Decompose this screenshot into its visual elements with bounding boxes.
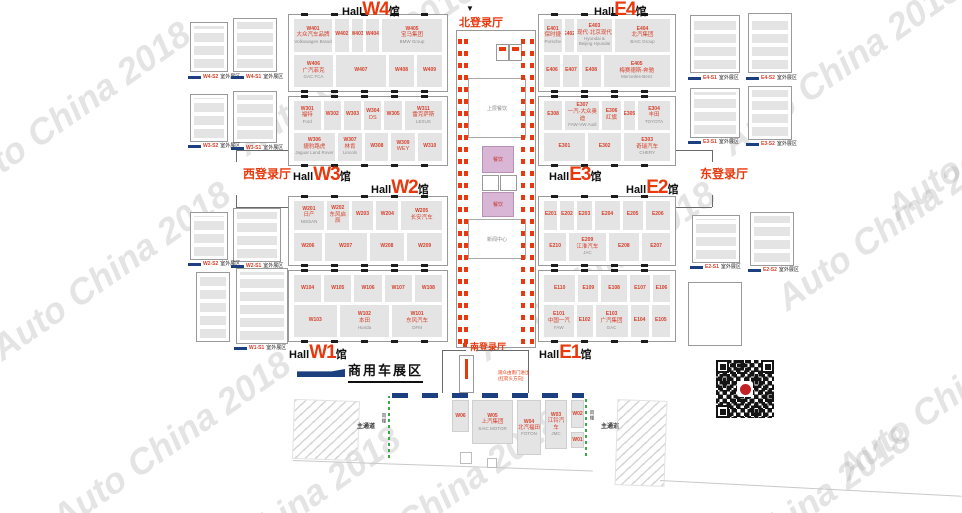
booth-id: W105: [331, 286, 344, 292]
hall-title-W1: HallW1馆: [289, 343, 347, 362]
booth-W102: W102本田Honda: [340, 305, 390, 337]
outdoor-zone-text: 室外展区: [777, 76, 797, 81]
hall-title-suffix: 馆: [590, 171, 601, 183]
booth-id: E408: [585, 68, 597, 74]
canopy-label-east: 雨棚: [589, 410, 595, 421]
outdoor-zone-id: W2-S1: [246, 264, 261, 269]
booth-W401: W401大众汽车品牌Volkswagen Brand: [294, 19, 332, 52]
booth-name-en: BAIC Group: [630, 39, 654, 44]
booth-name-en: FAW-VW Audi: [568, 122, 596, 127]
booth-E109: E109: [578, 275, 598, 302]
booth-E110: E110: [544, 275, 575, 302]
east-corridor-line: [676, 150, 712, 151]
booth-name-en: GAC: [607, 325, 617, 330]
outdoor-building-booths: [752, 17, 788, 69]
booth-id: E305: [624, 112, 635, 118]
hall-title-prefix: Hall: [289, 349, 309, 361]
zone-bar-icon: [231, 76, 244, 79]
booth-E209: E209江淮汽车JAC: [569, 233, 605, 262]
hall-row: E110E109E108E107E106: [544, 275, 670, 302]
booth-name-en: Jaguar Land Rover: [295, 150, 333, 155]
booth-name: 上汽集团: [481, 419, 503, 426]
hall-title-W2: HallW2馆: [371, 178, 429, 197]
outdoor-zone-text: 室外展区: [266, 346, 286, 351]
hall-title-prefix: Hall: [626, 184, 646, 196]
outdoor-building: [748, 13, 792, 73]
outdoor-zone-text: 室外展区: [719, 76, 739, 81]
booth-id: W108: [422, 286, 435, 292]
booth-W306: W306捷豹路虎Jaguar Land Rover: [294, 133, 335, 162]
booth-id: W06: [455, 413, 465, 419]
booth-id: E108: [608, 286, 620, 292]
hall-row: W306捷豹路虎Jaguar Land RoverW307林肯LincolnW3…: [294, 133, 442, 162]
outdoor-building-booths: [694, 92, 736, 134]
security-check-booth: [459, 355, 474, 393]
booth-id: E407: [565, 68, 577, 74]
outdoor-zone-text: 室外展区: [721, 265, 741, 270]
booth-id: E204: [602, 212, 614, 218]
booth-id: E109: [582, 286, 594, 292]
booth-E305: E305: [624, 101, 635, 130]
zone-bar-icon: [746, 77, 759, 80]
qr-center-logo-icon: [737, 381, 753, 397]
hall-title-suffix: 馆: [336, 349, 347, 361]
commercial-booth-W02: W02: [571, 400, 584, 428]
outdoor-building: [690, 88, 740, 138]
booth-id: W409: [423, 68, 436, 74]
outdoor-building: [190, 94, 228, 142]
booth-id: W01: [572, 437, 582, 443]
hall-title-suffix: 馆: [340, 171, 351, 183]
outdoor-zone-text: 室外展区: [263, 75, 283, 80]
hall-title-E2: HallE2馆: [626, 178, 678, 197]
booth-E210: E210: [544, 233, 566, 262]
commercial-booth-W01: W01: [571, 432, 584, 448]
booth-W202: W202东风启辰: [327, 201, 349, 230]
commercial-booth-W03: W03江铃汽车JMC: [545, 400, 567, 449]
commercial-zone-title: 商用车展区: [348, 360, 423, 383]
booth-id: W404: [366, 32, 379, 38]
outdoor-zone-id: E3-S1: [703, 140, 717, 145]
booth-E401: E401保时捷Porsche: [544, 19, 562, 52]
booth-E306: E306红旗: [602, 101, 620, 130]
site-marker: [460, 452, 472, 464]
west-boundary-hatch: [292, 399, 360, 461]
corridor-room: [482, 175, 499, 191]
hall-row: W104W105W106W107W108: [294, 275, 442, 302]
hall-row: E101中国一汽FAWE102E103广汽集团GACE104E105: [544, 305, 670, 337]
hall-title-code: W1: [309, 342, 336, 363]
booth-name: 长安汽车: [411, 215, 433, 221]
outdoor-zone-id: E3-S2: [761, 142, 775, 147]
booth-id: W107: [392, 286, 405, 292]
outdoor-building: [190, 22, 228, 72]
booth-id: W106: [361, 286, 374, 292]
booth-name-en: BMW Group: [400, 39, 425, 44]
booth-W103: W103: [294, 305, 337, 337]
hall-title-code: E2: [646, 177, 667, 198]
booth-W304: W304DS: [364, 101, 381, 130]
booth-W305: W305: [384, 101, 401, 130]
upper-dining-block: 上层餐饮: [468, 78, 526, 138]
qr-code: [713, 357, 777, 421]
north-registration-hall-label: 北登录厅: [459, 14, 503, 30]
booth-name: 红旗: [606, 115, 617, 121]
outdoor-zone-id: E2-S2: [763, 268, 777, 273]
outdoor-building: [692, 215, 740, 263]
booth-name-en: DFM: [412, 325, 422, 330]
booth-W308: W308: [365, 133, 388, 162]
visitor-note-line2: (红箭头方向): [498, 376, 524, 381]
booth-W302: W302: [324, 101, 341, 130]
hall-title-E4: HallE4馆: [594, 0, 646, 19]
hall-W2: W201日产NISSANW202东风启辰W203W204W205长安汽车W206…: [288, 196, 448, 266]
booth-id: W104: [301, 286, 314, 292]
booth-name-en: JMC: [551, 431, 560, 436]
hall-E3: E308E307一汽-大众奥迪FAW-VW AudiE306红旗E305E304…: [538, 96, 676, 166]
commercial-zone-bar: [297, 369, 345, 377]
floor-plan-canvas: Auto China 2018Auto China 2018Auto China…: [0, 0, 962, 513]
west-registration-hall-label: 西登录厅: [243, 165, 291, 182]
map-layer: ▼ 北登录厅 上层餐饮 餐饮 餐饮 新闻中心 西登录厅 东登录厅 南登录厅: [0, 0, 962, 513]
commercial-booth-W05: W05上汽集团SAIC MOTOR: [472, 400, 513, 444]
south-lobby-line: [442, 350, 443, 393]
booth-W310: W310: [418, 133, 442, 162]
corridor-kiosk: [496, 44, 509, 61]
zone-bar-icon: [231, 147, 244, 150]
booth-W402: W402: [335, 19, 349, 52]
main-aisle-label-west: 主通道: [357, 421, 375, 430]
booth-id: W209: [418, 244, 431, 250]
east-boundary-hatch: [615, 399, 668, 487]
booth-id: E302: [599, 144, 611, 150]
booth-E206: E206: [646, 201, 670, 230]
booth-name-en: Honda: [358, 325, 371, 330]
south-registration-hall-label: 南登录厅: [470, 340, 506, 353]
hall-row: E301E302E303奇瑞汽车CHERY: [544, 133, 670, 162]
booth-E107: E107: [630, 275, 650, 302]
booth-id: W408: [395, 68, 408, 74]
east-corridor-line: [712, 150, 713, 162]
booth-id: E207: [650, 244, 662, 250]
outdoor-zone-id: W3-S1: [246, 146, 261, 151]
corridor-booths-right-outer: [530, 36, 534, 344]
outdoor-zone-text: 室外展区: [777, 142, 797, 147]
outdoor-building-booths: [200, 276, 226, 338]
booth-id: E406: [546, 68, 558, 74]
dining-block: 餐饮: [482, 192, 514, 217]
booth-id: W310: [423, 144, 436, 150]
booth-name-en: LEXUS: [416, 119, 431, 124]
hall-W3: W301福特FordW302W303W304DSW305W311雷克萨斯LEXU…: [288, 96, 448, 166]
hall-row: W103W102本田HondaW101东风汽车DFM: [294, 305, 442, 337]
booth-name-en: TOYOTA: [645, 119, 663, 124]
qr-finder-icon: [716, 360, 729, 373]
hall-title-prefix: Hall: [549, 171, 569, 183]
outdoor-building-booths: [754, 216, 790, 262]
canopy-label-west: 雨棚: [381, 413, 387, 424]
booth-E202: E202: [560, 201, 573, 230]
outdoor-zone-text: 室外展区: [263, 146, 283, 151]
outdoor-zone-label-W1-S1: W1-S1室外展区: [234, 346, 286, 351]
hall-row: E406E407E408E405梅赛德斯-奔驰Mercedes-Benz: [544, 55, 670, 88]
hall-title-suffix: 馆: [580, 349, 591, 361]
booth-id: W402: [335, 32, 348, 38]
qr-finder-icon: [761, 360, 774, 373]
zone-bar-icon: [746, 143, 759, 146]
booth-E204: E204: [595, 201, 619, 230]
booth-id: W403: [352, 32, 363, 38]
corridor-room: [500, 175, 517, 191]
booth-W204: W204: [376, 201, 398, 230]
booth-name-en: CHERY: [639, 150, 655, 155]
outdoor-building-booths: [237, 22, 273, 68]
hall-title-prefix: Hall: [342, 6, 362, 18]
booth-name: 一汽-大众奥迪: [565, 109, 599, 122]
booth-id: E110: [554, 286, 565, 292]
outdoor-building-booths: [194, 216, 224, 256]
hall-E2: E201E202E203E204E205E206E210E209江淮汽车JACE…: [538, 196, 676, 266]
booth-W208: W208: [370, 233, 405, 262]
booth-id: E402: [565, 32, 574, 38]
booth-id: W308: [370, 144, 383, 150]
hall-title-W4: HallW4馆: [342, 0, 400, 19]
booth-id: W02: [572, 411, 582, 417]
booth-name: 江铃汽车: [546, 418, 566, 431]
outdoor-building: [748, 86, 792, 140]
outdoor-building: [750, 212, 794, 266]
booth-E103: E103广汽集团GAC: [596, 305, 628, 337]
hall-title-E3: HallE3馆: [549, 165, 601, 184]
booth-W108: W108: [415, 275, 442, 302]
booth-W404: W404: [366, 19, 380, 52]
hall-row: E210E209江淮汽车JACE208E207: [544, 233, 670, 262]
hall-row: E401保时捷PorscheE402E403现代·北京现代Hyundai & B…: [544, 19, 670, 52]
booth-W104: W104: [294, 275, 321, 302]
outdoor-building: [233, 18, 277, 72]
hall-title-prefix: Hall: [594, 6, 614, 18]
commercial-entrance-dashes: [392, 393, 584, 398]
hall-title-prefix: Hall: [293, 171, 313, 183]
booth-id: E106: [656, 286, 668, 292]
outdoor-building-booths: [696, 219, 736, 259]
booth-id: W303: [346, 112, 359, 118]
outdoor-zone-id: E2-S1: [705, 265, 719, 270]
booth-id: W302: [326, 112, 339, 118]
booth-E108: E108: [601, 275, 627, 302]
hall-title-prefix: Hall: [539, 349, 559, 361]
zone-bar-icon: [690, 266, 703, 269]
hall-title-prefix: Hall: [371, 184, 391, 196]
booth-E405: E405梅赛德斯-奔驰Mercedes-Benz: [604, 55, 670, 88]
booth-name-en: FAW: [554, 325, 564, 330]
hall-title-suffix: 馆: [667, 184, 678, 196]
booth-E404: E404北汽集团BAIC Group: [615, 19, 670, 52]
outdoor-zone-text: 室外展区: [263, 264, 283, 269]
booth-E205: E205: [623, 201, 643, 230]
booth-W409: W409: [417, 55, 442, 88]
commercial-booth-W04: W04北汽福田FOTON: [517, 400, 541, 455]
booth-name-en: Porsche: [545, 39, 562, 44]
booth-id: W305: [387, 112, 400, 118]
canopy-line-east: [585, 396, 587, 456]
outdoor-building: [196, 272, 230, 342]
outdoor-building: [690, 15, 740, 73]
south-entrance-marker: [463, 343, 467, 347]
zone-bar-icon: [188, 145, 201, 148]
booth-W205: W205长安汽车: [401, 201, 442, 230]
booth-id: E105: [655, 318, 667, 324]
booth-W311: W311雷克萨斯LEXUS: [405, 101, 442, 130]
outdoor-building-booths: [237, 95, 273, 139]
booth-name: 东风启辰: [327, 212, 349, 225]
booth-id: E203: [579, 212, 591, 218]
outdoor-building-booths: [194, 98, 224, 138]
booth-E101: E101中国一汽FAW: [544, 305, 574, 337]
outdoor-zone-text: 室外展区: [719, 140, 739, 145]
booth-W105: W105: [324, 275, 351, 302]
booth-W201: W201日产NISSAN: [294, 201, 324, 230]
outdoor-zone-label-E2-S1: E2-S1室外展区: [690, 265, 741, 270]
booth-id: E206: [652, 212, 664, 218]
booth-name-en: NISSAN: [301, 219, 318, 224]
outdoor-building-booths: [237, 212, 277, 258]
outdoor-zone-label-E3-S2: E3-S2室外展区: [746, 142, 797, 147]
east-corridor-line: [676, 207, 712, 208]
booth-E301: E301: [544, 133, 585, 162]
canopy-line-west: [388, 396, 390, 458]
booth-E207: E207: [642, 233, 670, 262]
corridor-booths-left-inner: [464, 36, 468, 344]
outdoor-zone-label-E4-S2: E4-S2室外展区: [746, 76, 797, 81]
qr-finder-icon: [716, 405, 729, 418]
hall-title-E1: HallE1馆: [539, 343, 591, 362]
booth-id: W206: [301, 244, 314, 250]
outdoor-zone-label-E3-S1: E3-S1室外展区: [688, 140, 739, 145]
visitor-flow-note: 观众由南门进出 (红箭头方向): [498, 370, 540, 383]
east-registration-hall-label: 东登录厅: [700, 165, 748, 182]
booth-W406: W406广汽菲克GAC FCA: [294, 55, 333, 88]
booth-name-en: JAC: [583, 250, 592, 255]
booth-W405: W405宝马集团BMW Group: [382, 19, 442, 52]
booth-W301: W301福特Ford: [294, 101, 321, 130]
corridor-booths-left-outer: [458, 36, 462, 344]
hall-title-suffix: 馆: [389, 6, 400, 18]
hall-title-code: W4: [362, 0, 389, 20]
zone-bar-icon: [188, 76, 201, 79]
booth-id: E205: [627, 212, 639, 218]
outdoor-zone-id: W4-S2: [203, 75, 218, 80]
booth-W207: W207: [325, 233, 367, 262]
outdoor-building: [190, 212, 228, 260]
booth-id: E301: [559, 144, 571, 150]
booth-id: E210: [549, 244, 561, 250]
booth-E105: E105: [652, 305, 670, 337]
outdoor-zone-label-E2-S2: E2-S2室外展区: [748, 268, 799, 273]
booth-W106: W106: [354, 275, 381, 302]
south-lobby-line: [476, 350, 528, 351]
booth-id: E104: [634, 318, 646, 324]
press-center-block: 新闻中心: [468, 219, 526, 259]
hall-W1: W104W105W106W107W108W103W102本田HondaW101东…: [288, 270, 448, 342]
booth-name: 北汽福田: [518, 425, 540, 432]
outdoor-zone-id: W3-S2: [203, 144, 218, 149]
booth-W407: W407: [336, 55, 386, 88]
booth-W408: W408: [389, 55, 414, 88]
unlabeled-outbuilding: [688, 282, 742, 346]
west-corridor-line: [236, 150, 237, 162]
outdoor-zone-text: 室外展区: [779, 268, 799, 273]
booth-id: W208: [380, 244, 393, 250]
east-corridor-line: [712, 195, 713, 207]
site-boundary-line: [660, 480, 962, 497]
booth-W307: W307林肯Lincoln: [338, 133, 362, 162]
outdoor-zone-id: E4-S1: [703, 76, 717, 81]
outdoor-zone-id: W1-S1: [249, 346, 264, 351]
booth-W209: W209: [407, 233, 442, 262]
booth-name-en: Lincoln: [343, 150, 357, 155]
booth-E402: E402: [565, 19, 574, 52]
booth-W309: W309WEY: [391, 133, 414, 162]
booth-E302: E302: [588, 133, 622, 162]
booth-E406: E406: [544, 55, 560, 88]
north-arrow-icon: ▼: [466, 5, 474, 13]
zone-bar-icon: [234, 347, 247, 350]
hall-E1: E110E109E108E107E106E101中国一汽FAWE102E103广…: [538, 270, 676, 342]
hall-row: W301福特FordW302W303W304DSW305W311雷克萨斯LEXU…: [294, 101, 442, 130]
hall-title-code: W2: [391, 177, 418, 198]
hall-title-code: W3: [313, 164, 340, 185]
hall-E4: E401保时捷PorscheE402E403现代·北京现代Hyundai & B…: [538, 14, 676, 92]
booth-W206: W206: [294, 233, 322, 262]
site-boundary-line: [293, 460, 593, 471]
booth-id: E107: [634, 286, 646, 292]
booth-id: E202: [561, 212, 573, 218]
outdoor-building-booths: [194, 26, 224, 68]
outdoor-building-booths: [694, 19, 736, 69]
dining-block: 餐饮: [482, 146, 514, 173]
booth-E201: E201: [544, 201, 557, 230]
booth-name-en: Mercedes-Benz: [621, 74, 653, 79]
hall-row: E201E202E203E204E205E206: [544, 201, 670, 230]
hall-title-W3: HallW3馆: [293, 165, 351, 184]
booth-name-en: Hyundai & Beijing Hyundai: [577, 36, 612, 46]
zone-bar-icon: [748, 269, 761, 272]
booth-W203: W203: [352, 201, 374, 230]
booth-name-en: FOTON: [521, 431, 537, 436]
booth-name-en: GAC FCA: [303, 74, 323, 79]
booth-W303: W303: [344, 101, 361, 130]
outdoor-zone-label-W2-S1: W2-S1室外展区: [231, 264, 283, 269]
hall-row: W206W207W208W209: [294, 233, 442, 262]
booth-E408: E408: [582, 55, 601, 88]
booth-name-en: Ford: [303, 119, 312, 124]
booth-W403: W403: [352, 19, 363, 52]
booth-W101: W101东风汽车DFM: [392, 305, 442, 337]
hall-W4: W401大众汽车品牌Volkswagen BrandW402W403W404W4…: [288, 14, 448, 92]
booth-id: W203: [356, 212, 369, 218]
booth-E106: E106: [653, 275, 670, 302]
booth-E308: E308: [544, 101, 562, 130]
booth-id: W103: [309, 318, 322, 324]
south-lobby-line: [442, 350, 466, 351]
booth-E208: E208: [609, 233, 640, 262]
hall-row: W406广汽菲克GAC FCAW407W408W409: [294, 55, 442, 88]
outdoor-zone-id: W2-S2: [203, 262, 218, 267]
outdoor-building-booths: [240, 272, 284, 340]
hall-row: W201日产NISSANW202东风启辰W203W204W205长安汽车: [294, 201, 442, 230]
booth-E104: E104: [631, 305, 649, 337]
